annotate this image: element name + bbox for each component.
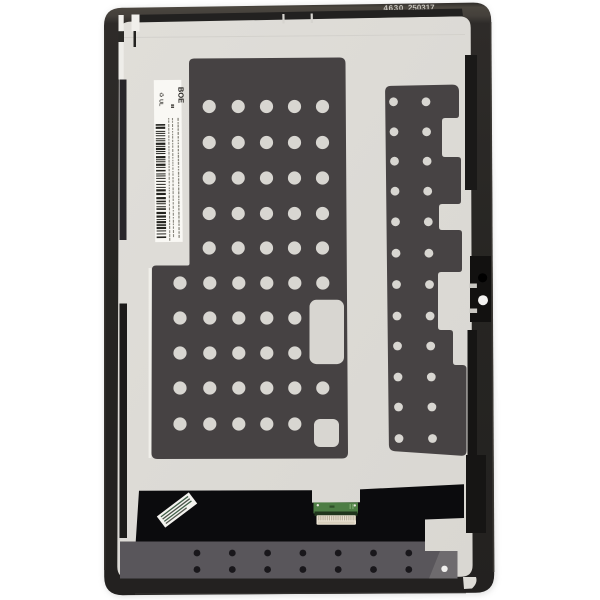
svg-text:BOE: BOE	[176, 87, 185, 103]
svg-text:UL: UL	[157, 99, 163, 107]
svg-text:▮▮: ▮▮	[171, 104, 176, 108]
svg-text:♻: ♻	[157, 92, 164, 97]
